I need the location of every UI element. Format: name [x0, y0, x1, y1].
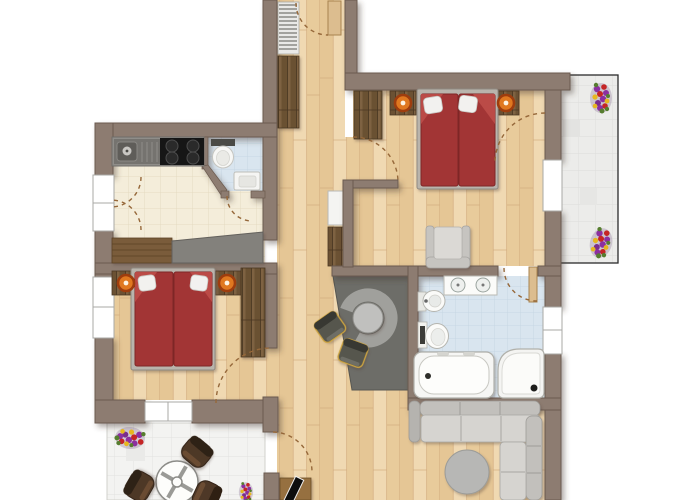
basin-drain	[482, 284, 485, 287]
double-bed	[417, 89, 498, 189]
round-table	[353, 303, 383, 333]
wall	[545, 353, 561, 500]
bedside-lamp	[395, 95, 411, 111]
pillow	[423, 96, 443, 115]
pillow	[138, 274, 157, 291]
wall	[95, 400, 145, 423]
bidet-bowl	[429, 295, 441, 307]
coffee-table	[445, 450, 489, 494]
toilet-bowl	[431, 329, 445, 346]
balcony-tile-accent	[580, 188, 597, 205]
tub-handle	[463, 352, 475, 356]
wall	[95, 123, 277, 137]
corner-shower	[498, 349, 544, 398]
pillow	[190, 274, 209, 291]
sofa-back	[420, 401, 540, 416]
entry-door-leaf	[328, 1, 341, 35]
sofa-back	[526, 416, 542, 500]
bedside-lamp	[118, 275, 134, 291]
tub-faucet	[425, 373, 431, 379]
wall	[264, 473, 279, 500]
basin-drain	[457, 284, 460, 287]
wall	[95, 337, 113, 403]
bathroom-door-leaf	[529, 267, 537, 302]
console-shelf	[328, 191, 344, 225]
wall	[545, 90, 561, 160]
wc-toilet-bowl	[217, 151, 230, 166]
bedroom-left	[112, 268, 265, 370]
pillow	[458, 95, 478, 113]
sideboard-wood	[112, 238, 172, 263]
bidet-faucet	[424, 299, 428, 303]
wall	[343, 180, 353, 267]
balcony-door-opening	[543, 160, 562, 211]
wc-basin-bowl	[239, 176, 256, 187]
wall	[345, 73, 570, 90]
wall	[95, 123, 113, 175]
shower-drain	[531, 385, 538, 392]
bathtub	[414, 352, 494, 398]
wall	[192, 400, 263, 423]
tv-sideboard	[280, 476, 311, 500]
double-bed	[131, 268, 215, 370]
toilet-cistern-lid	[420, 326, 425, 344]
armchair	[426, 226, 470, 268]
wardrobe	[241, 268, 265, 357]
wc-toilet-cistern	[211, 139, 235, 146]
tub-handle	[437, 352, 449, 356]
sofa-seat	[421, 415, 540, 442]
wall	[263, 0, 277, 137]
wall	[545, 210, 561, 307]
wall	[263, 137, 277, 240]
entry-wardrobe	[278, 56, 299, 128]
wardrobe	[354, 91, 382, 139]
wall	[263, 397, 278, 432]
floor-plan	[0, 0, 700, 500]
balcony-tile-accent	[563, 120, 580, 137]
bedside-lamp	[498, 95, 514, 111]
sofa-armrest	[409, 401, 420, 442]
bedside-lamp	[219, 275, 235, 291]
sofa-seat	[500, 442, 526, 500]
hall-wardrobe	[328, 227, 344, 266]
wall	[345, 0, 357, 75]
sink-drain	[126, 150, 129, 153]
wall	[538, 266, 561, 276]
floor-plan-drawing	[0, 0, 700, 500]
wc-wall	[251, 191, 265, 198]
coat-rack	[278, 2, 299, 54]
wc-wall	[221, 191, 229, 198]
